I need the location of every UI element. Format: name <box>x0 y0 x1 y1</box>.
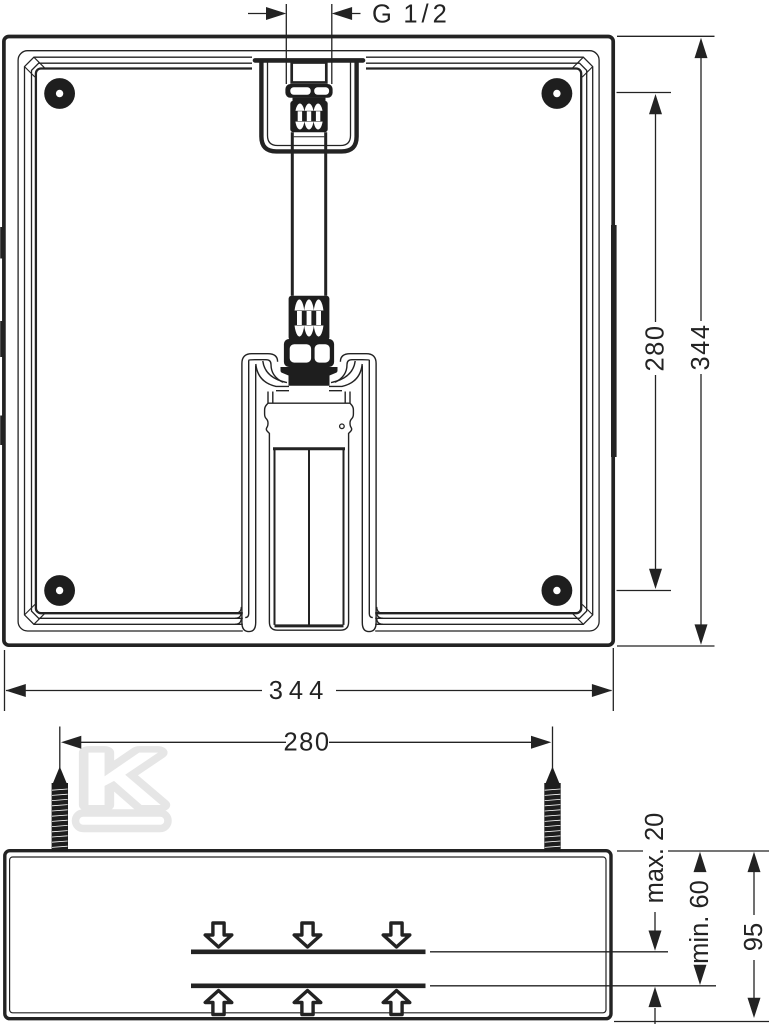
svg-text:344: 344 <box>687 323 715 370</box>
svg-text:K: K <box>81 737 162 821</box>
svg-text:95: 95 <box>740 923 768 951</box>
svg-text:280: 280 <box>642 324 670 371</box>
svg-text:G1/2: G1/2 <box>372 1 451 29</box>
svg-text:280: 280 <box>283 729 330 757</box>
svg-text:344: 344 <box>269 677 330 705</box>
svg-text:min. 60: min. 60 <box>686 880 714 964</box>
svg-text:max. 20: max. 20 <box>641 813 669 904</box>
